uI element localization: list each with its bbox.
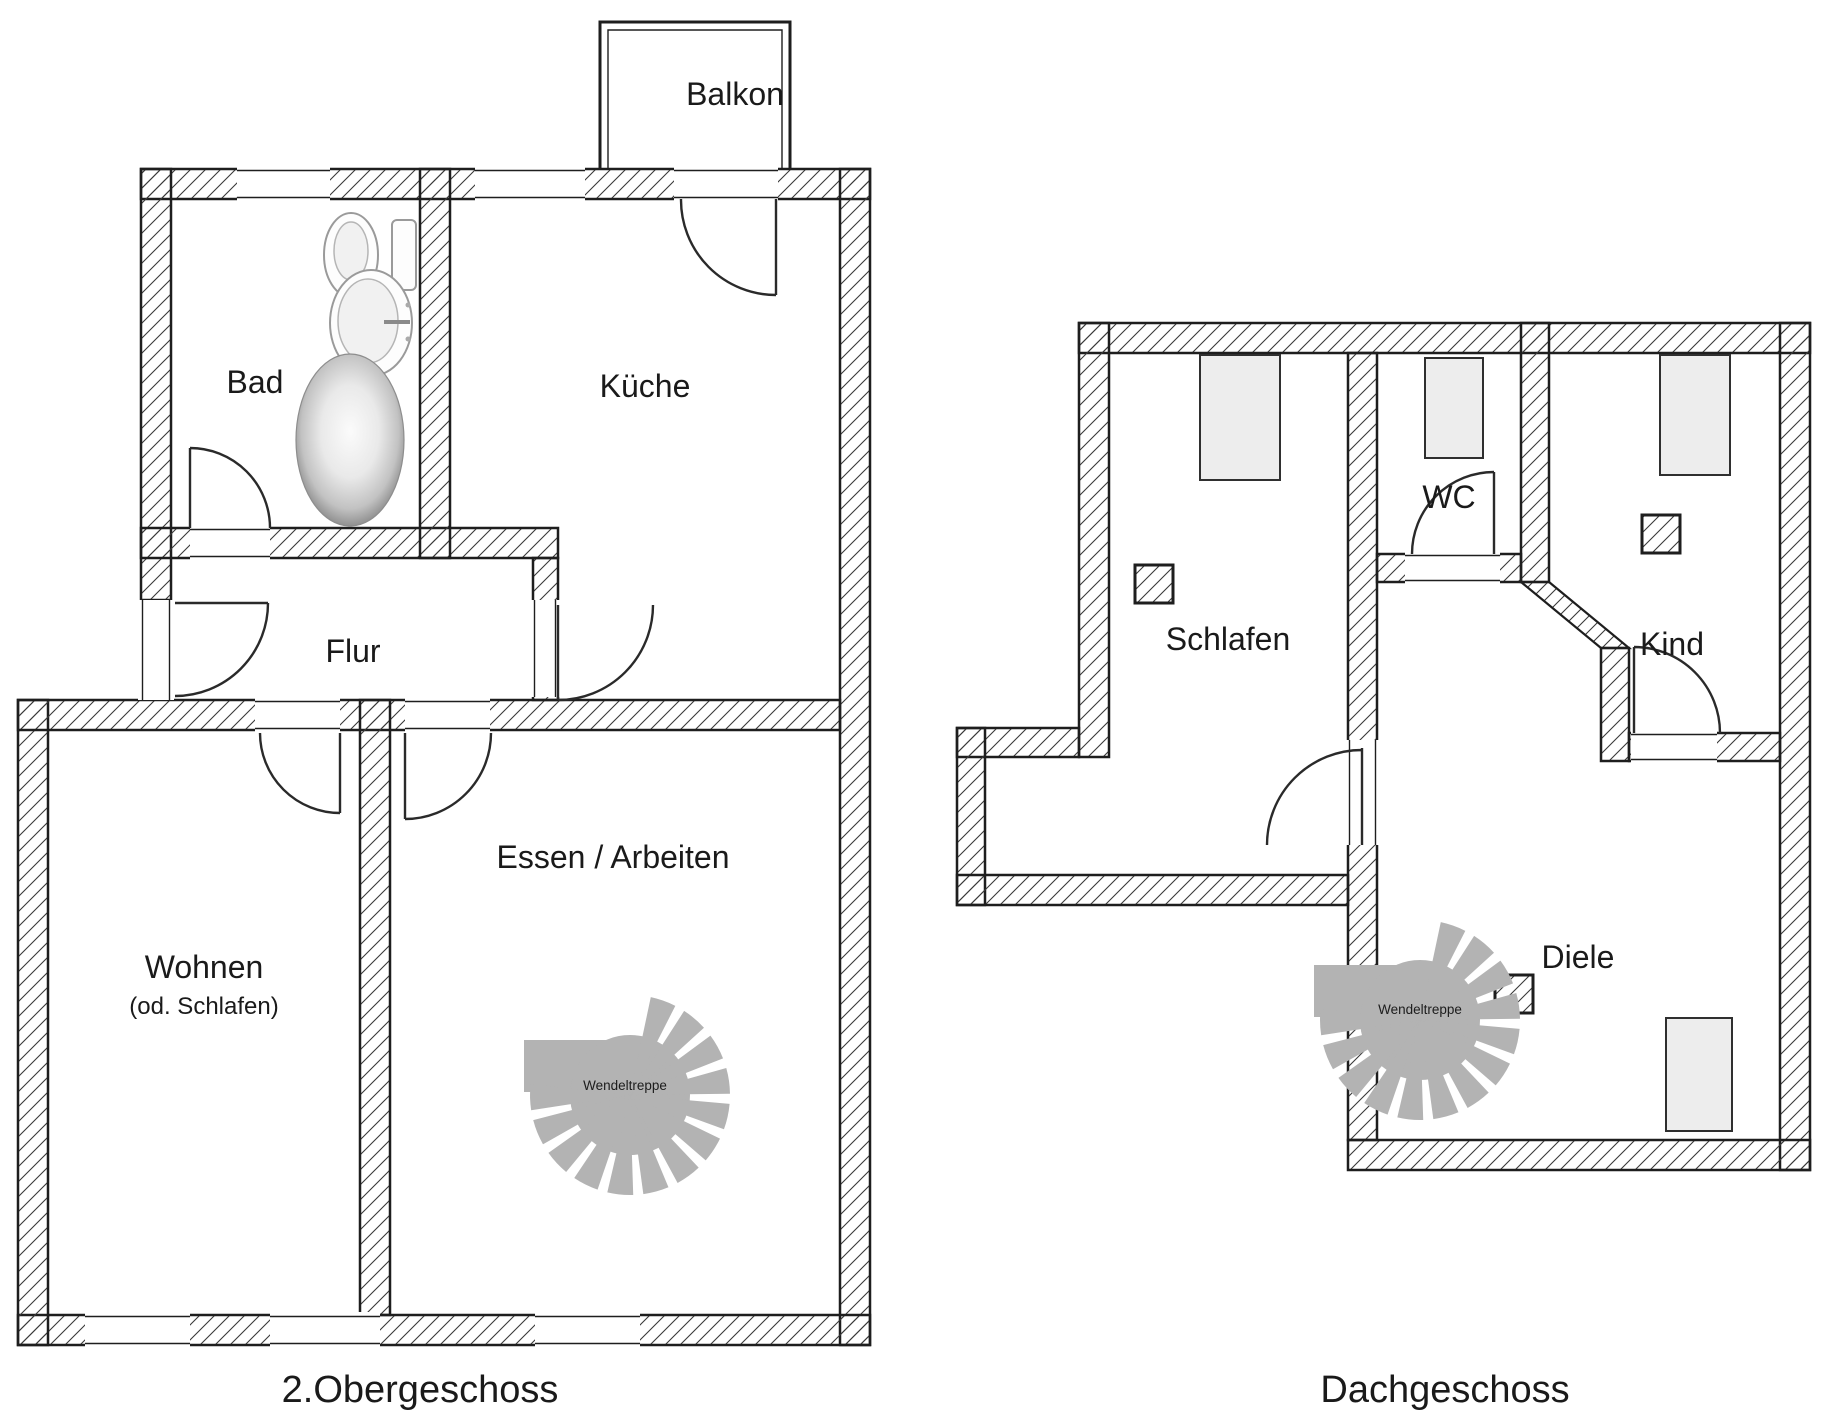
window-opening (535, 1312, 640, 1348)
spiral-staircase-icon (524, 997, 730, 1195)
spiral-staircase-icon (1314, 922, 1520, 1120)
balcony-door-opening (674, 166, 778, 202)
chimney-icon (1642, 515, 1680, 553)
room-label-flur: Flur (325, 633, 380, 669)
room-label-essen: Essen / Arbeiten (496, 839, 729, 875)
window-opening (237, 166, 330, 202)
walls-obergeschoss (18, 169, 870, 1345)
caption-obergeschoss: 2.Obergeschoss (282, 1369, 559, 1411)
bathroom-fixtures (296, 213, 416, 526)
skylight (1200, 355, 1280, 480)
room-label-schlafen: Schlafen (1166, 621, 1291, 657)
chimney-icon (1135, 565, 1173, 603)
door-swing-arc (405, 733, 491, 819)
skylight (1425, 358, 1483, 458)
door-swing-arc (260, 733, 340, 813)
door-openings-dg (1345, 551, 1717, 845)
room-label-wohnen: Wohnen (145, 949, 264, 985)
window-opening (475, 166, 585, 202)
door-swing-arc (175, 603, 268, 696)
caption-dachgeschoss: Dachgeschoss (1320, 1369, 1569, 1411)
skylight (1660, 355, 1730, 475)
floorplan-page: Balkon Bad Küche Flur Wohnen (od. Schlaf… (0, 0, 1833, 1428)
room-label-kueche: Küche (600, 368, 691, 404)
room-label-wc: WC (1422, 479, 1475, 515)
room-label-wohnen-alt: (od. Schlafen) (129, 993, 278, 1020)
bathtub-icon (296, 354, 404, 526)
room-label-kind: Kind (1640, 626, 1704, 662)
room-label-bad: Bad (227, 364, 284, 400)
skylight (1666, 1018, 1732, 1131)
room-label-balkon: Balkon (686, 76, 784, 112)
room-label-diele: Diele (1542, 939, 1615, 975)
door-swing-arc (190, 448, 270, 528)
stair-label-dg: Wendeltreppe (1378, 1002, 1462, 1017)
floorplan-dachgeschoss: Schlafen WC Kind Diele Wendeltreppe Dach… (957, 323, 1810, 1411)
window-opening (85, 1312, 190, 1348)
door-swing-arc (558, 605, 653, 700)
floorplan-2-obergeschoss: Balkon Bad Küche Flur Wohnen (od. Schlaf… (18, 22, 870, 1411)
stair-label-og: Wendeltreppe (583, 1078, 667, 1093)
door-swing-arc (681, 199, 776, 295)
window-opening (270, 1312, 380, 1348)
